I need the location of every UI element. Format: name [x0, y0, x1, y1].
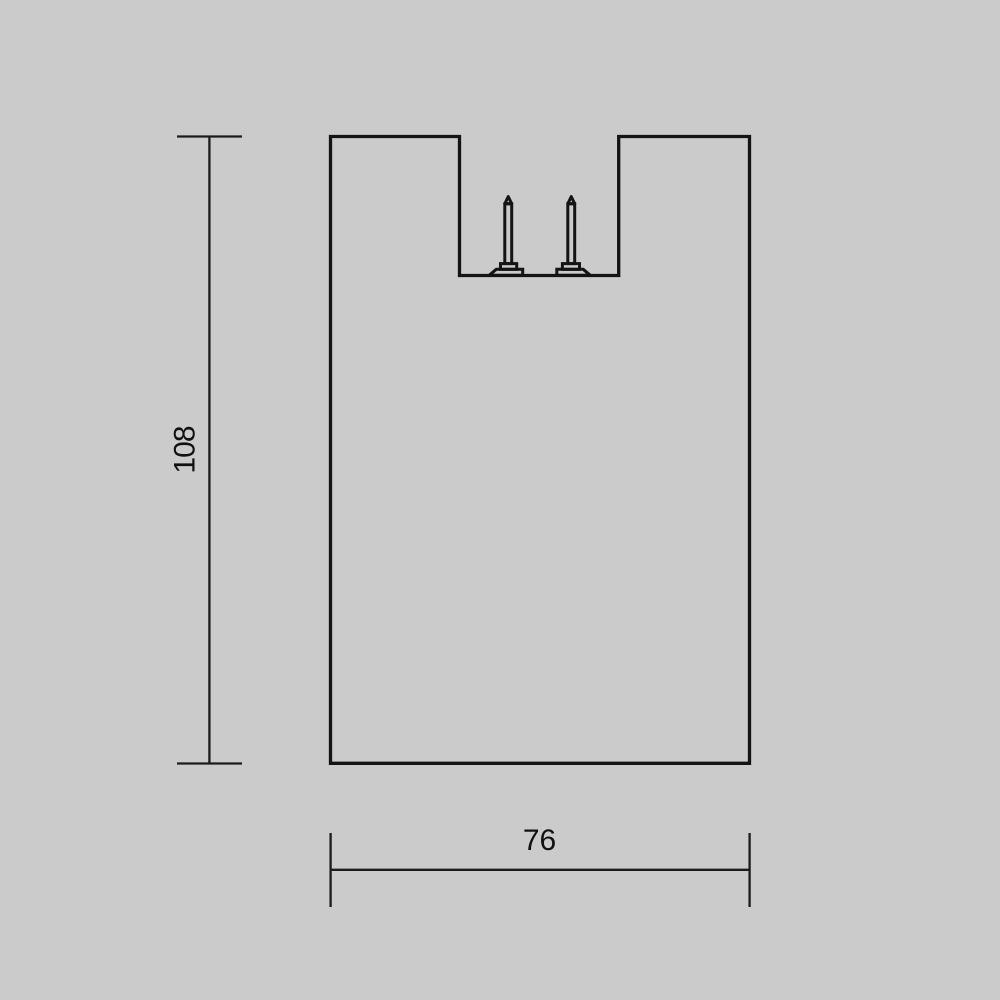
svg-text:76: 76 — [523, 824, 556, 857]
svg-text:108: 108 — [168, 426, 201, 474]
